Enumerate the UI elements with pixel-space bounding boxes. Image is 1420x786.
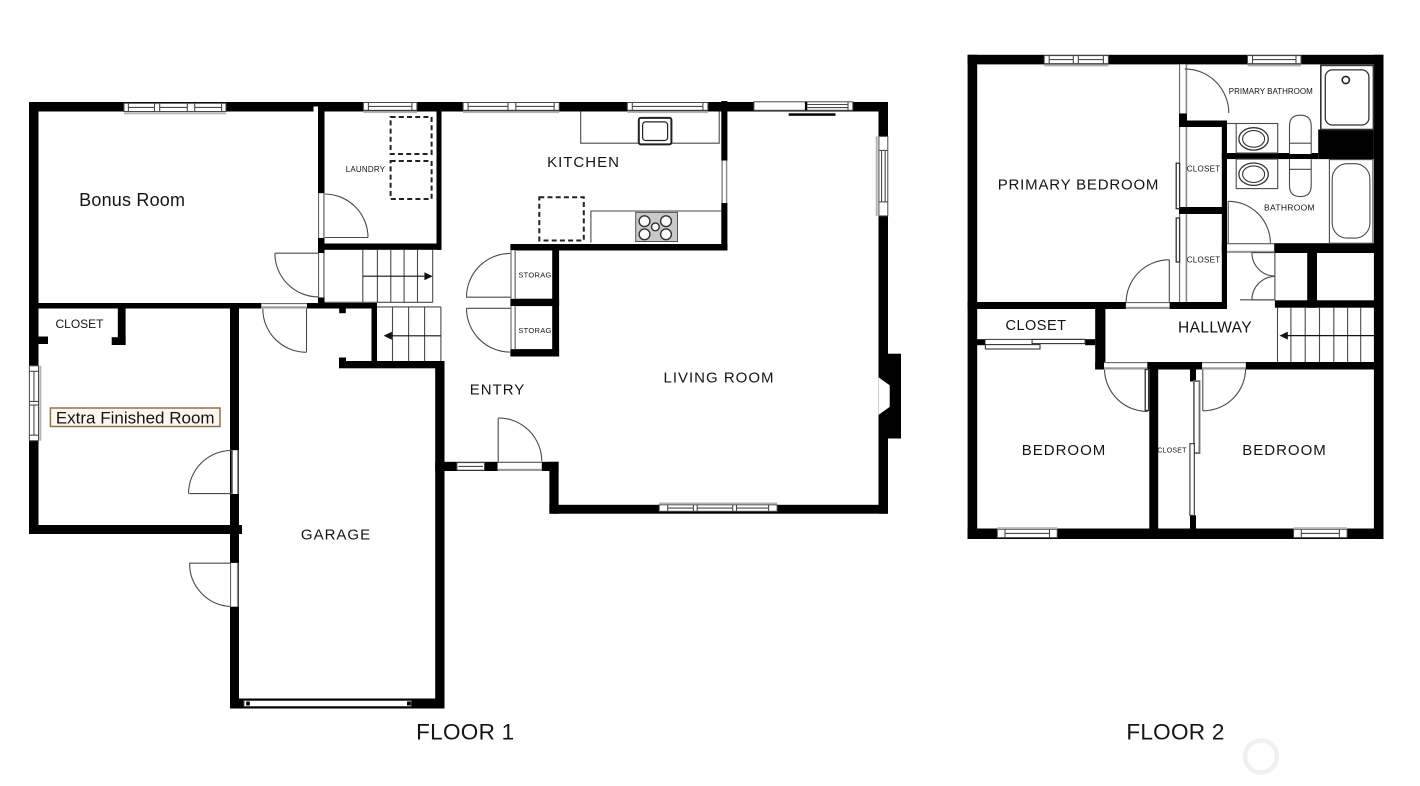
svg-text:Bonus Room: Bonus Room — [79, 190, 185, 210]
svg-text:FLOOR 2: FLOOR 2 — [1126, 720, 1224, 745]
svg-text:PRIMARY BEDROOM: PRIMARY BEDROOM — [998, 177, 1159, 194]
svg-text:CLOSET: CLOSET — [1005, 318, 1066, 334]
svg-text:BEDROOM: BEDROOM — [1022, 442, 1107, 459]
svg-text:Extra Finished Room: Extra Finished Room — [56, 408, 215, 427]
svg-text:STORAG: STORAG — [518, 271, 551, 280]
svg-text:KITCHEN: KITCHEN — [547, 154, 620, 171]
svg-text:LIVING ROOM: LIVING ROOM — [663, 370, 774, 387]
svg-text:BEDROOM: BEDROOM — [1242, 442, 1327, 459]
svg-text:CLOSET: CLOSET — [1187, 165, 1221, 174]
svg-text:FLOOR 1: FLOOR 1 — [416, 720, 514, 745]
svg-text:PRIMARY BATHROOM: PRIMARY BATHROOM — [1229, 87, 1313, 96]
svg-text:CLOSET: CLOSET — [55, 317, 104, 331]
svg-text:STORAG: STORAG — [518, 326, 551, 335]
svg-text:GARAGE: GARAGE — [301, 527, 371, 544]
svg-text:LAUNDRY: LAUNDRY — [346, 165, 386, 174]
svg-text:HALLWAY: HALLWAY — [1178, 320, 1252, 337]
svg-text:CLOSET: CLOSET — [1157, 448, 1187, 455]
svg-text:ENTRY: ENTRY — [470, 382, 526, 399]
svg-text:CLOSET: CLOSET — [1187, 256, 1221, 265]
svg-text:BATHROOM: BATHROOM — [1264, 203, 1315, 213]
